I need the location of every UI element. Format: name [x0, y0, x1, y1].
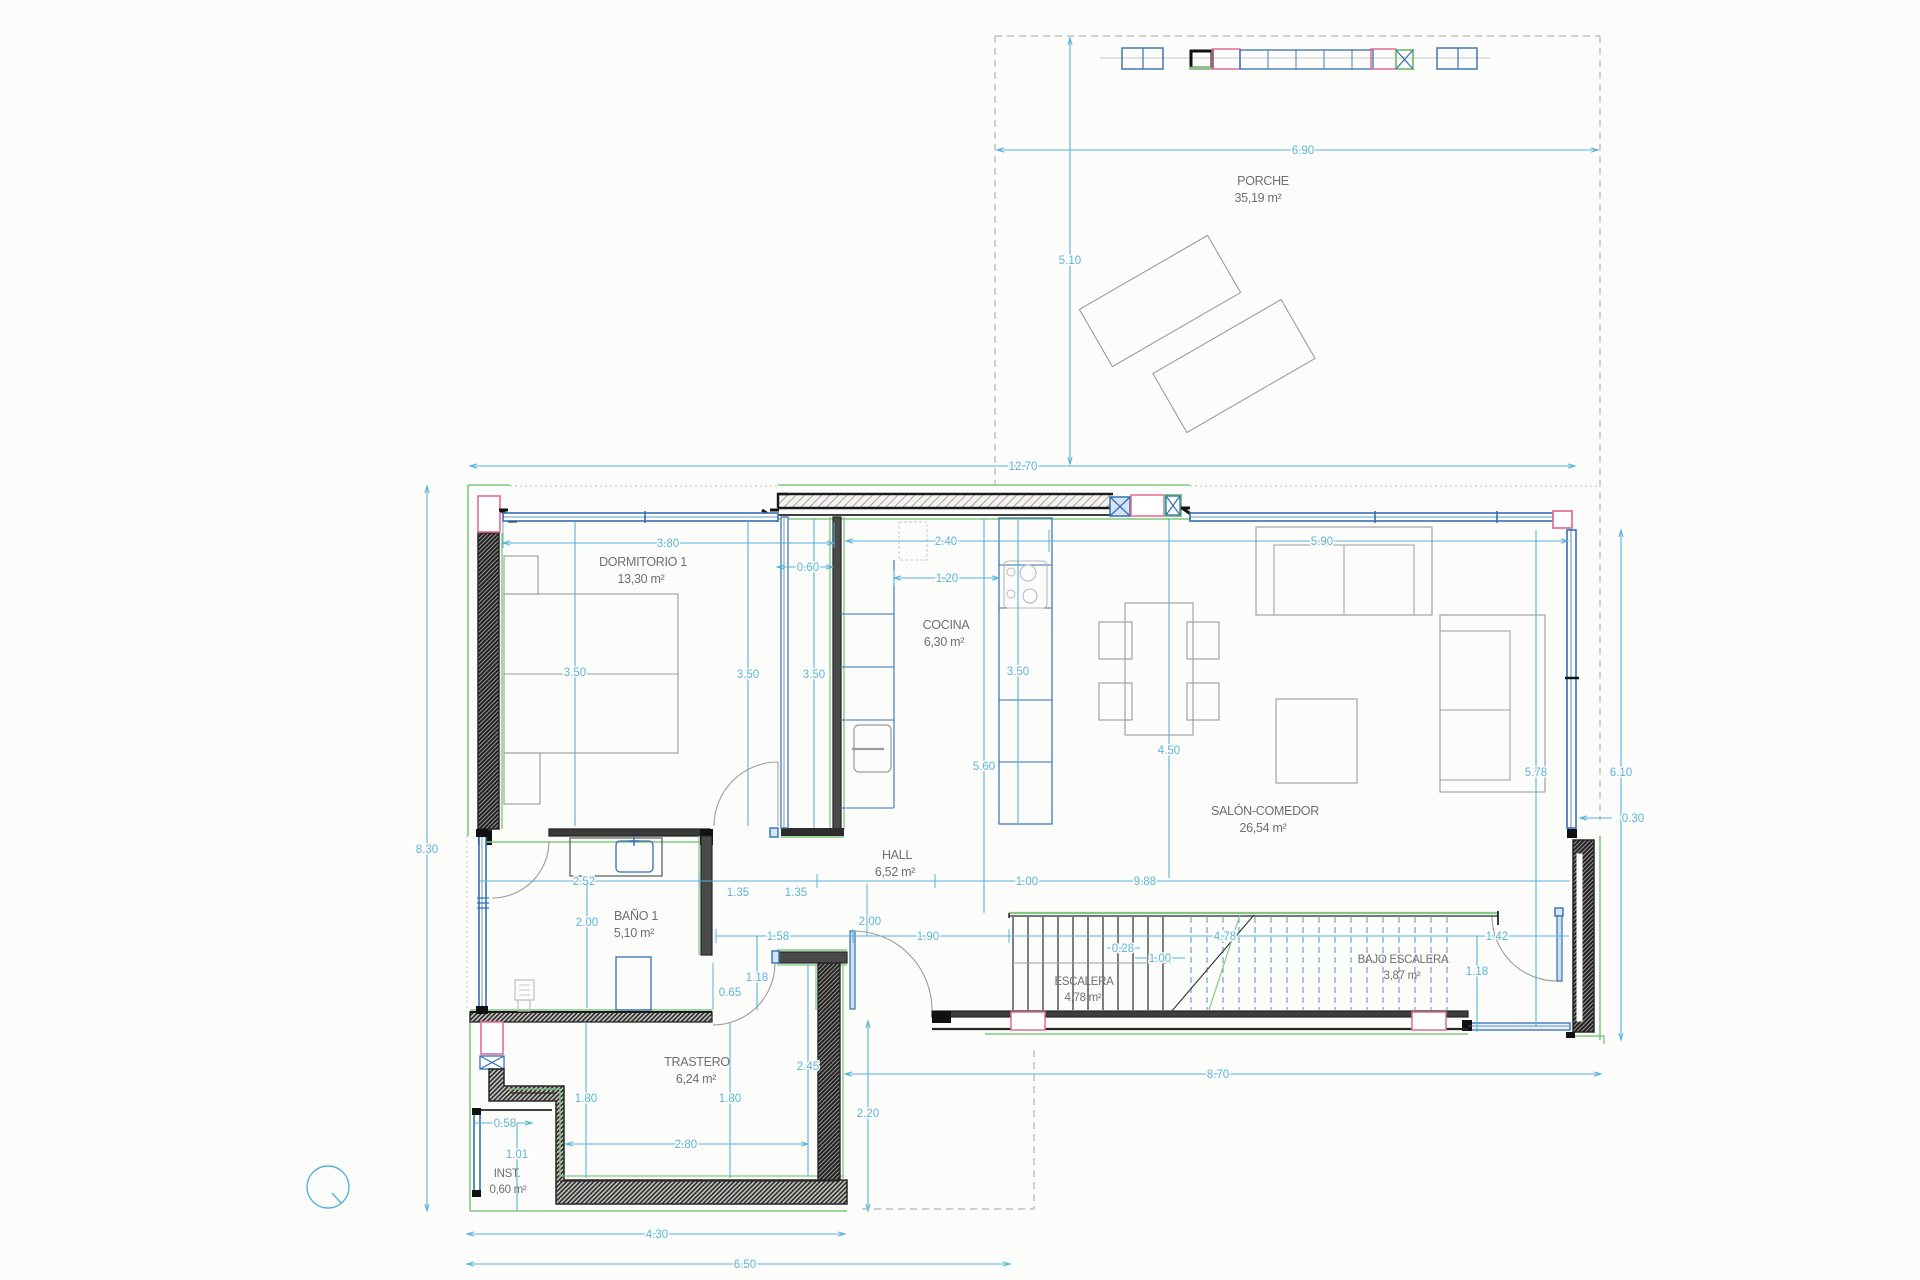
- svg-text:4.78: 4.78: [1214, 931, 1236, 943]
- svg-text:35,19 m²: 35,19 m²: [1235, 191, 1282, 205]
- svg-text:PORCHE: PORCHE: [1237, 174, 1289, 188]
- svg-text:6.90: 6.90: [1292, 145, 1314, 157]
- svg-text:BAÑO 1: BAÑO 1: [614, 909, 658, 923]
- svg-text:0.65: 0.65: [719, 987, 741, 999]
- svg-text:1.20: 1.20: [936, 573, 958, 585]
- svg-text:1.80: 1.80: [719, 1093, 741, 1105]
- svg-text:6,24 m²: 6,24 m²: [676, 1072, 716, 1086]
- svg-text:8.70: 8.70: [1207, 1069, 1229, 1081]
- svg-text:3.50: 3.50: [564, 667, 586, 679]
- svg-text:4,78 m²: 4,78 m²: [1065, 992, 1102, 1004]
- svg-text:2.20: 2.20: [857, 1108, 879, 1120]
- svg-text:5.78: 5.78: [1525, 767, 1547, 779]
- svg-text:HALL: HALL: [882, 848, 912, 862]
- svg-text:1.35: 1.35: [727, 887, 749, 899]
- svg-text:8.30: 8.30: [416, 844, 438, 856]
- svg-text:BAJO ESCALERA: BAJO ESCALERA: [1358, 954, 1449, 966]
- svg-text:3.50: 3.50: [803, 669, 825, 681]
- svg-text:2.00: 2.00: [576, 917, 598, 929]
- svg-text:26,54 m²: 26,54 m²: [1240, 821, 1287, 835]
- svg-text:0.30: 0.30: [1622, 813, 1644, 825]
- svg-text:3.50: 3.50: [1007, 666, 1029, 678]
- svg-text:INST.: INST.: [494, 1168, 521, 1180]
- svg-text:3,87 m²: 3,87 m²: [1384, 970, 1421, 982]
- svg-text:5.90: 5.90: [1311, 536, 1333, 548]
- svg-text:5,10 m²: 5,10 m²: [614, 926, 654, 940]
- svg-text:1.42: 1.42: [1486, 931, 1508, 943]
- svg-text:1.35: 1.35: [785, 887, 807, 899]
- svg-text:1.00: 1.00: [1149, 953, 1171, 965]
- svg-text:1.18: 1.18: [746, 972, 768, 984]
- svg-text:ESCALERA: ESCALERA: [1055, 976, 1115, 988]
- svg-text:1.58: 1.58: [767, 931, 789, 943]
- svg-text:2.52: 2.52: [573, 876, 595, 888]
- svg-text:4.50: 4.50: [1158, 745, 1180, 757]
- svg-text:6.50: 6.50: [734, 1259, 756, 1271]
- svg-text:2.45: 2.45: [797, 1061, 819, 1073]
- svg-text:6.10: 6.10: [1610, 767, 1632, 779]
- svg-text:1.00: 1.00: [1016, 876, 1038, 888]
- svg-text:2.80: 2.80: [675, 1139, 697, 1151]
- svg-text:13,30 m²: 13,30 m²: [618, 572, 665, 586]
- svg-text:2.40: 2.40: [935, 536, 957, 548]
- svg-text:SALÓN-COMEDOR: SALÓN-COMEDOR: [1211, 803, 1319, 818]
- svg-text:0.60: 0.60: [797, 562, 819, 574]
- svg-text:2.00: 2.00: [859, 916, 881, 928]
- svg-text:4.30: 4.30: [646, 1229, 668, 1241]
- svg-text:0.58: 0.58: [494, 1118, 516, 1130]
- svg-text:12.70: 12.70: [1009, 461, 1038, 473]
- svg-text:6,52 m²: 6,52 m²: [875, 865, 915, 879]
- svg-text:5.60: 5.60: [973, 761, 995, 773]
- svg-text:TRASTERO: TRASTERO: [664, 1055, 730, 1069]
- svg-text:DORMITORIO 1: DORMITORIO 1: [599, 555, 687, 569]
- svg-text:1.01: 1.01: [506, 1149, 528, 1161]
- svg-text:1.90: 1.90: [917, 931, 939, 943]
- svg-text:3.80: 3.80: [657, 538, 679, 550]
- svg-text:COCINA: COCINA: [923, 618, 971, 632]
- svg-text:1.80: 1.80: [575, 1093, 597, 1105]
- svg-text:1.18: 1.18: [1466, 966, 1488, 978]
- svg-text:0,60 m²: 0,60 m²: [490, 1184, 527, 1196]
- svg-text:0.28: 0.28: [1112, 943, 1134, 955]
- svg-text:6,30 m²: 6,30 m²: [924, 635, 964, 649]
- svg-text:9.88: 9.88: [1134, 876, 1156, 888]
- svg-text:3.50: 3.50: [737, 669, 759, 681]
- svg-text:5.10: 5.10: [1059, 255, 1081, 267]
